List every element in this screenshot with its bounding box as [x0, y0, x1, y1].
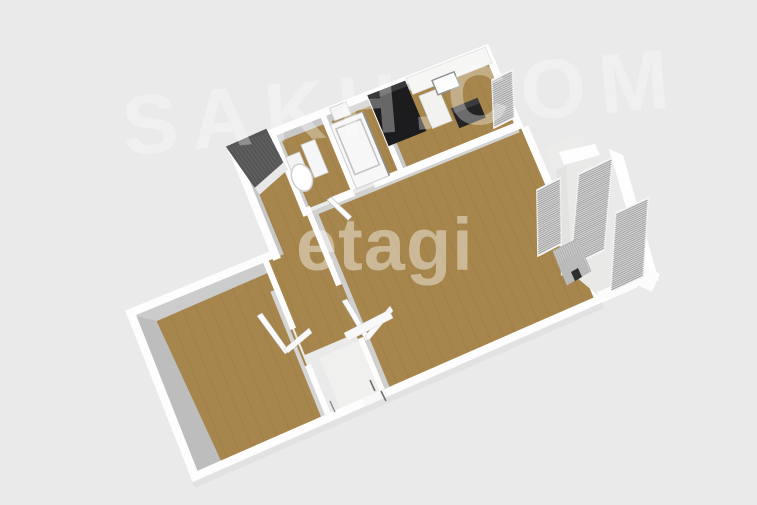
svg-text:etagi: etagi	[296, 203, 474, 286]
